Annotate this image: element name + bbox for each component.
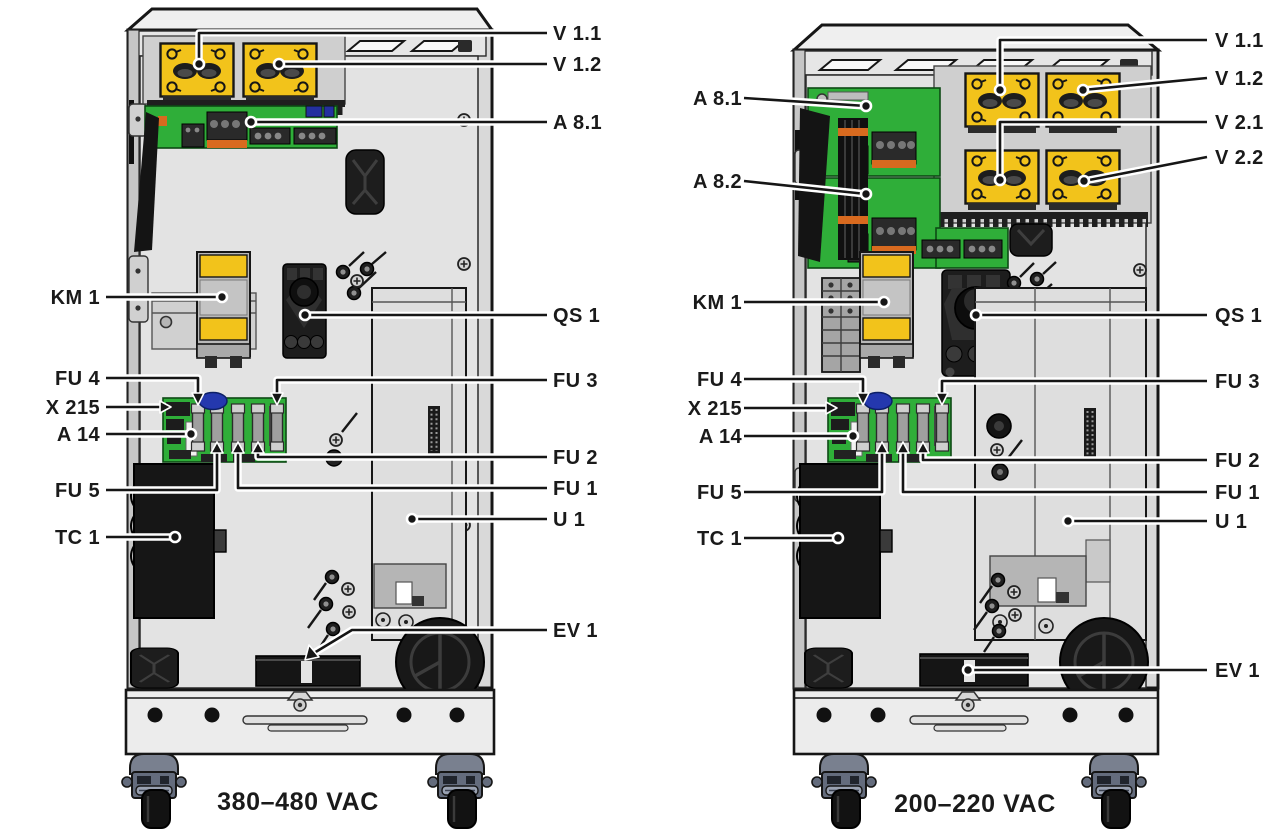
label-left-tc-1: TC 1: [55, 527, 100, 549]
callout-v1-2: [274, 59, 547, 69]
label-right-a8-2: A 8.2: [693, 171, 742, 193]
label-left-a-14: A 14: [57, 424, 101, 446]
callout-tc-1: [106, 532, 180, 542]
label-right-tc-1: TC 1: [697, 528, 742, 550]
label-right-ev-1: EV 1: [1215, 660, 1260, 682]
callout-u-1: [1063, 516, 1207, 526]
label-right-fu-2: FU 2: [1215, 450, 1260, 472]
caption-left-voltage: 380–480 VAC: [217, 788, 379, 816]
label-left-v1-1: V 1.1: [553, 23, 602, 45]
label-right-v1-1: V 1.1: [1215, 30, 1264, 52]
fuse-board-left: [163, 393, 286, 463]
module-v1-2: [244, 44, 317, 104]
contactor-km1-left: [197, 252, 250, 368]
label-right-v2-2: V 2.2: [1215, 147, 1264, 169]
label-right-a-14: A 14: [699, 426, 743, 448]
callout-km-1: [106, 292, 227, 302]
caster: [122, 754, 186, 828]
duct-u1-left: [372, 288, 466, 640]
label-right-a8-1: A 8.1: [693, 88, 742, 110]
board-a8-1-left: [145, 106, 337, 148]
contactor-km1-right: [860, 252, 913, 368]
label-right-fu-5: FU 5: [697, 482, 742, 504]
diagram-canvas: V 1.1 V 1.2 A 8.1 QS 1 FU 3 FU 2 FU 1 U …: [0, 0, 1280, 832]
caster: [428, 754, 492, 828]
panel-screw: [458, 258, 470, 270]
caster: [812, 754, 876, 828]
label-left-km-1: KM 1: [51, 287, 100, 309]
cabinet-diagram: V 1.1 V 1.2 A 8.1 QS 1 FU 3 FU 2 FU 1 U …: [0, 0, 1280, 832]
panel-screw: [1134, 264, 1146, 276]
label-right-fu-4: FU 4: [697, 369, 742, 391]
label-right-v1-2: V 1.2: [1215, 68, 1264, 90]
callout-qs-1: [300, 310, 547, 320]
left-cabinet: [122, 9, 494, 828]
label-right-km-1: KM 1: [693, 292, 742, 314]
callout-ev-1: [963, 665, 1207, 675]
callout-u-1: [407, 514, 547, 524]
right-pedestal: [805, 648, 852, 688]
callout-a-14: [106, 429, 196, 439]
label-right-qs-1: QS 1: [1215, 305, 1262, 327]
label-left-u-1: U 1: [553, 509, 585, 531]
panel-screw: [330, 434, 342, 446]
callout-km-1: [744, 297, 889, 307]
label-right-x-215: X 215: [688, 398, 742, 420]
left-pedestal: [131, 648, 178, 688]
label-right-u-1: U 1: [1215, 511, 1247, 533]
label-left-fu-1: FU 1: [553, 478, 598, 500]
callout-tc-1: [744, 533, 843, 543]
label-left-fu-5: FU 5: [55, 480, 100, 502]
label-left-v1-2: V 1.2: [553, 54, 602, 76]
label-left-a8-1: A 8.1: [553, 112, 602, 134]
fan-ev1-left: [256, 656, 360, 686]
left-base: [126, 690, 494, 754]
label-left-fu-2: FU 2: [553, 447, 598, 469]
label-right-v2-1: V 2.1: [1215, 112, 1264, 134]
right-base: [794, 690, 1158, 754]
label-right-fu-3: FU 3: [1215, 371, 1260, 393]
label-left-ev-1: EV 1: [553, 620, 598, 642]
left-cabinet-top: [128, 9, 492, 30]
fuse-board-right: [828, 393, 951, 463]
label-left-fu-3: FU 3: [553, 370, 598, 392]
right-handle: [1010, 224, 1052, 256]
right-cabinet: [794, 25, 1158, 828]
callout-a8-1: [246, 117, 547, 127]
label-right-fu-1: FU 1: [1215, 482, 1260, 504]
caster: [1082, 754, 1146, 828]
callout-a-14: [744, 431, 858, 441]
caption-right-voltage: 200–220 VAC: [894, 790, 1056, 818]
terminal-stack-right: [822, 278, 860, 372]
label-left-x-215: X 215: [46, 397, 100, 419]
left-hinge-tab-mid: [129, 256, 148, 322]
label-left-fu-4: FU 4: [55, 368, 100, 390]
callout-qs-1: [971, 310, 1207, 320]
label-left-qs-1: QS 1: [553, 305, 600, 327]
